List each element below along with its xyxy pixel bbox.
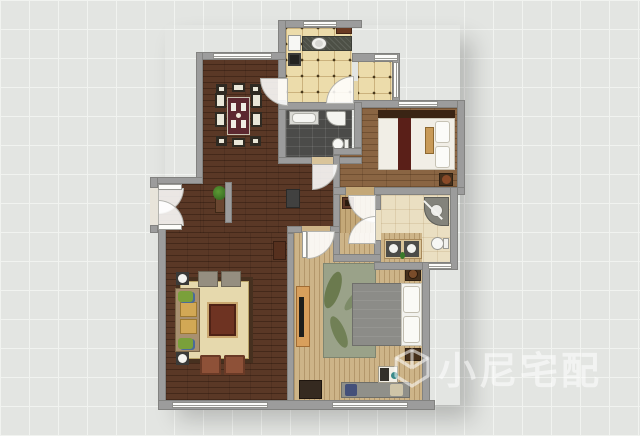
place-setting (231, 120, 236, 128)
rug-leaf-pattern (327, 314, 352, 350)
bedroom2-stool-top (442, 175, 451, 184)
window (332, 402, 408, 408)
partition-wall (225, 182, 232, 223)
side-table-top (178, 354, 187, 363)
master-bed-duvet (352, 283, 403, 346)
bed2-runner (398, 118, 411, 170)
watermark-text: 小尼宅配 (438, 340, 602, 395)
balcony-floor (358, 61, 392, 102)
floorplan-canvas[interactable]: 小尼宅配 (0, 0, 640, 436)
dining-corner-seat (216, 136, 227, 146)
wall (196, 52, 203, 184)
place-setting (241, 103, 246, 111)
pillow (435, 121, 450, 143)
wall (333, 148, 362, 155)
wall (278, 20, 286, 78)
wall (150, 225, 158, 233)
bathtub-basin (292, 113, 316, 123)
dining-corner-seat (216, 84, 227, 94)
bed2-frame (378, 110, 455, 118)
accent-chair (221, 271, 241, 287)
wall (333, 254, 381, 262)
wall (333, 187, 346, 195)
window (172, 402, 268, 408)
window (374, 54, 398, 61)
wall (354, 102, 362, 148)
master-door-leaf (302, 231, 307, 258)
rug-leaf-pattern (323, 270, 346, 310)
side-table-top (178, 274, 187, 283)
wall (450, 187, 458, 270)
armchair (224, 355, 245, 375)
fridge (288, 35, 301, 51)
entry-door-leaf (158, 184, 182, 190)
window (398, 101, 438, 107)
pillow (435, 146, 450, 168)
dining-chair (232, 83, 245, 92)
window (213, 53, 272, 59)
tv (299, 297, 304, 337)
wall (457, 100, 465, 195)
entry-door-leaf (158, 224, 182, 230)
table-centerpiece (236, 113, 241, 118)
doorway-threshold (150, 187, 158, 226)
vanity-basin (407, 244, 416, 253)
watermark-logo-icon (392, 347, 432, 389)
wall (287, 226, 302, 233)
wall (287, 233, 294, 410)
kitchen-sink-basin (315, 40, 323, 47)
window (303, 21, 337, 27)
place-setting (241, 120, 246, 128)
sofa-pillow (178, 291, 193, 302)
pillow (403, 316, 420, 343)
kitchen-cabinet (336, 27, 352, 34)
place-setting (231, 103, 236, 111)
dining-chair (251, 112, 262, 127)
pillow (403, 286, 420, 313)
shoe-cabinet (286, 189, 300, 208)
dining-corner-seat (250, 84, 261, 94)
window (393, 62, 399, 98)
sofa-cushion (180, 319, 197, 334)
master-cabinet (299, 380, 322, 399)
wall (278, 157, 312, 164)
coffee-table (207, 302, 238, 338)
armchair (200, 355, 221, 375)
sofa-cushion (180, 302, 197, 317)
sofa-pillow (178, 338, 193, 349)
accent-chair (198, 271, 218, 287)
doorway-threshold (346, 187, 374, 195)
dining-chair (215, 93, 226, 108)
kitchen-counter (302, 36, 352, 51)
dining-chair (251, 93, 262, 108)
vanity-plant (400, 252, 405, 259)
watermark: 小尼宅配 (392, 340, 602, 395)
living-cabinet (273, 241, 286, 260)
stove (288, 53, 301, 66)
bench-pillow (345, 384, 357, 396)
window (428, 263, 452, 269)
nightstand-lamp (408, 269, 418, 279)
wall (158, 226, 166, 410)
wall (150, 177, 158, 188)
toilet-tank (443, 238, 449, 249)
dining-chair (215, 112, 226, 127)
dining-chair (232, 138, 245, 147)
bed2-bench (425, 127, 434, 154)
vanity-basin (389, 244, 398, 253)
dining-corner-seat (250, 136, 261, 146)
decor-tray-item (380, 368, 389, 381)
